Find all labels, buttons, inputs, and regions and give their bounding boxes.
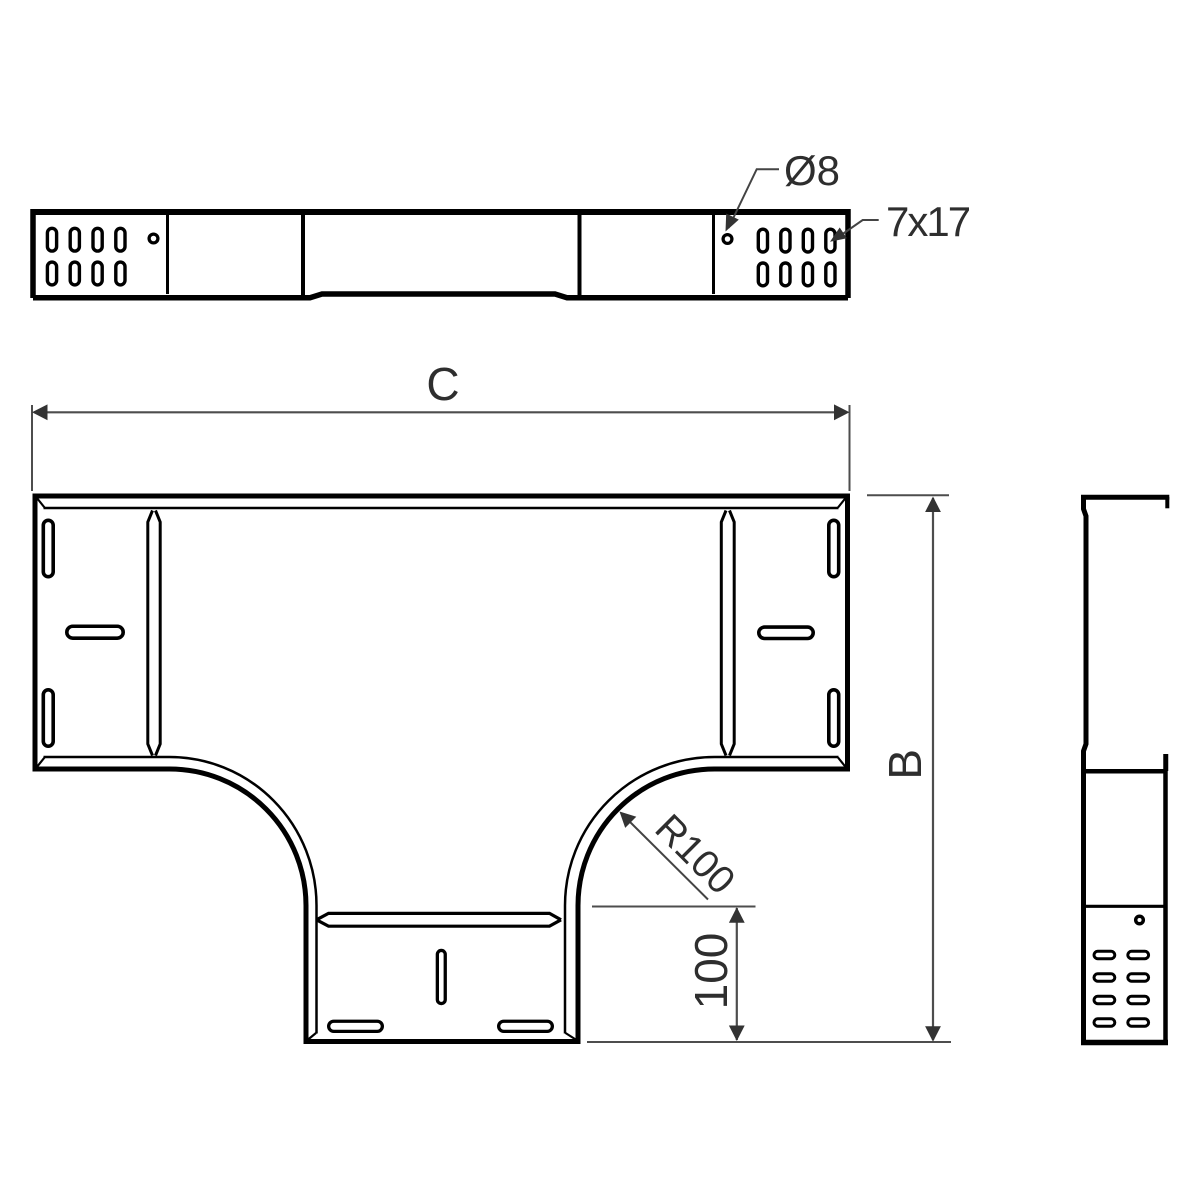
- svg-text:100: 100: [685, 933, 737, 1010]
- svg-text:7x17: 7x17: [886, 198, 970, 245]
- svg-text:C: C: [426, 358, 459, 410]
- svg-text:B: B: [879, 749, 931, 780]
- svg-text:Ø8: Ø8: [784, 147, 840, 194]
